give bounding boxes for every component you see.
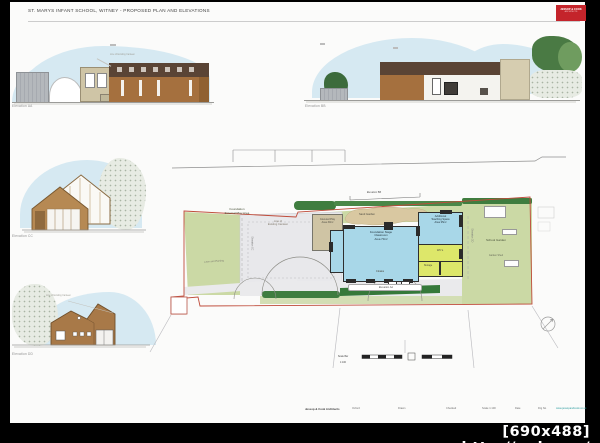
elevation-dd-label: Elevation DD bbox=[12, 352, 33, 356]
footer-item: Scale 1:100 bbox=[482, 407, 496, 410]
corner-column bbox=[199, 77, 209, 102]
footer-item: Drg No bbox=[538, 407, 546, 410]
school-garden-label: School Garden bbox=[476, 239, 516, 243]
elevation-aa-label: Elevation AA bbox=[12, 104, 32, 108]
wall-segment bbox=[366, 279, 375, 283]
slot-window bbox=[189, 80, 192, 96]
elevation-bb-drawing: Elevation BB bbox=[304, 36, 584, 112]
window bbox=[85, 73, 95, 88]
footer-item: Date bbox=[515, 407, 520, 410]
roof-band bbox=[109, 63, 209, 77]
wall-segment bbox=[329, 242, 333, 252]
footer-item: Jessop & Cook Architects bbox=[305, 407, 340, 411]
garden-structure bbox=[504, 260, 519, 267]
play-area-label: Foundation External Play Area bbox=[206, 208, 268, 215]
wall-segment bbox=[384, 222, 393, 230]
wall-segment bbox=[440, 210, 452, 214]
brown-wall-bb bbox=[380, 75, 424, 100]
marker-cc-label: Elevation CC bbox=[250, 228, 253, 258]
slot-window bbox=[157, 80, 160, 96]
dimension-mark bbox=[320, 43, 325, 45]
wall bbox=[109, 77, 209, 102]
small-window bbox=[480, 88, 488, 95]
covered-play-label: Covered Play Area 30m² bbox=[313, 218, 342, 224]
footer-item: Drawn bbox=[398, 407, 406, 410]
ground-strip-bb bbox=[306, 101, 576, 103]
elevation-cc-label: Elevation CC bbox=[12, 234, 33, 238]
scale-bar-line2: 1:100 bbox=[340, 361, 346, 364]
main-building-aa bbox=[109, 63, 209, 102]
garden-structure bbox=[502, 229, 517, 235]
teaching-label: Additional Teaching Space Area 35m² bbox=[422, 215, 459, 224]
annotation-dd: Line of Existing Canteen bbox=[46, 295, 92, 298]
title-rule bbox=[28, 21, 580, 22]
architect-logo: JESSOP & COOK ARCHITECTS bbox=[556, 5, 586, 21]
existing-canteen-label: Line of Existing Canteen bbox=[256, 220, 300, 226]
beige-block-bb bbox=[500, 59, 530, 100]
window bbox=[97, 73, 107, 88]
shrubs-bb-right bbox=[530, 70, 582, 98]
existing-canteen-outline bbox=[49, 77, 83, 103]
scale-bar-label: Scale Bar 1:100 bbox=[328, 353, 358, 365]
square-window bbox=[444, 82, 458, 95]
wall-segment bbox=[416, 226, 420, 236]
tan-block-aa bbox=[80, 67, 110, 102]
marker-aa-box: Elevation AA bbox=[348, 284, 422, 291]
room-divider bbox=[439, 262, 441, 275]
garden-shed-label: Garden Shed bbox=[480, 255, 512, 258]
wall-segment bbox=[343, 225, 355, 229]
clerestory-windows bbox=[117, 67, 201, 72]
classroom-label: Foundation Stage Classroom Area 70m² bbox=[351, 231, 411, 241]
footer-item: Checked bbox=[446, 407, 456, 410]
footer-website: www.jessopandcook.co.uk bbox=[556, 407, 586, 410]
elevation-bb-label: Elevation BB bbox=[305, 104, 326, 108]
dimension-mark bbox=[393, 47, 398, 49]
marker-dd-label: Elevation DD bbox=[470, 220, 473, 250]
watermark-text: [690x488] http://upic.me/ bbox=[378, 424, 590, 443]
wcs-label: WC's bbox=[430, 249, 450, 252]
screenshot-stage: Line of Existing Canteen Elevation AA El… bbox=[0, 0, 600, 443]
ground-strip-aa bbox=[14, 103, 212, 105]
wcs-room bbox=[418, 244, 463, 262]
wall-segment bbox=[459, 215, 463, 227]
dimension-mark bbox=[110, 44, 116, 46]
marker-bb-label: Elevation BB bbox=[354, 191, 394, 194]
sand-garden-label: Sand Garden bbox=[352, 213, 382, 216]
roof-band-bb bbox=[380, 62, 500, 75]
sheet-title: ST. MARYS INFANT SCHOOL, WITNEY - PROPOS… bbox=[28, 8, 210, 13]
white-wall-bb bbox=[424, 75, 500, 100]
slot-window bbox=[139, 80, 142, 96]
elevation-aa-drawing: Line of Existing Canteen Elevation AA bbox=[12, 40, 218, 112]
drawing-sheet: Line of Existing Canteen Elevation AA El… bbox=[10, 2, 585, 423]
annotation-aa: Line of Existing Canteen bbox=[110, 54, 154, 57]
scale-bar-line1: Scale Bar bbox=[338, 355, 348, 358]
slot-window bbox=[432, 78, 441, 95]
cloaks-label: Cloaks bbox=[368, 270, 392, 273]
fence-bb bbox=[320, 88, 348, 100]
garden-structure bbox=[484, 206, 506, 218]
footer-item: Oxford bbox=[352, 407, 360, 410]
wall-segment bbox=[346, 279, 356, 283]
tree-bb-right-light bbox=[558, 42, 582, 72]
wall-segment bbox=[459, 249, 463, 259]
storage-label: Storage bbox=[419, 265, 437, 268]
slot-window bbox=[121, 80, 124, 96]
fence-aa bbox=[16, 72, 49, 102]
logo-subtitle: ARCHITECTS bbox=[556, 11, 586, 13]
marker-aa-label: Elevation AA bbox=[349, 286, 423, 289]
